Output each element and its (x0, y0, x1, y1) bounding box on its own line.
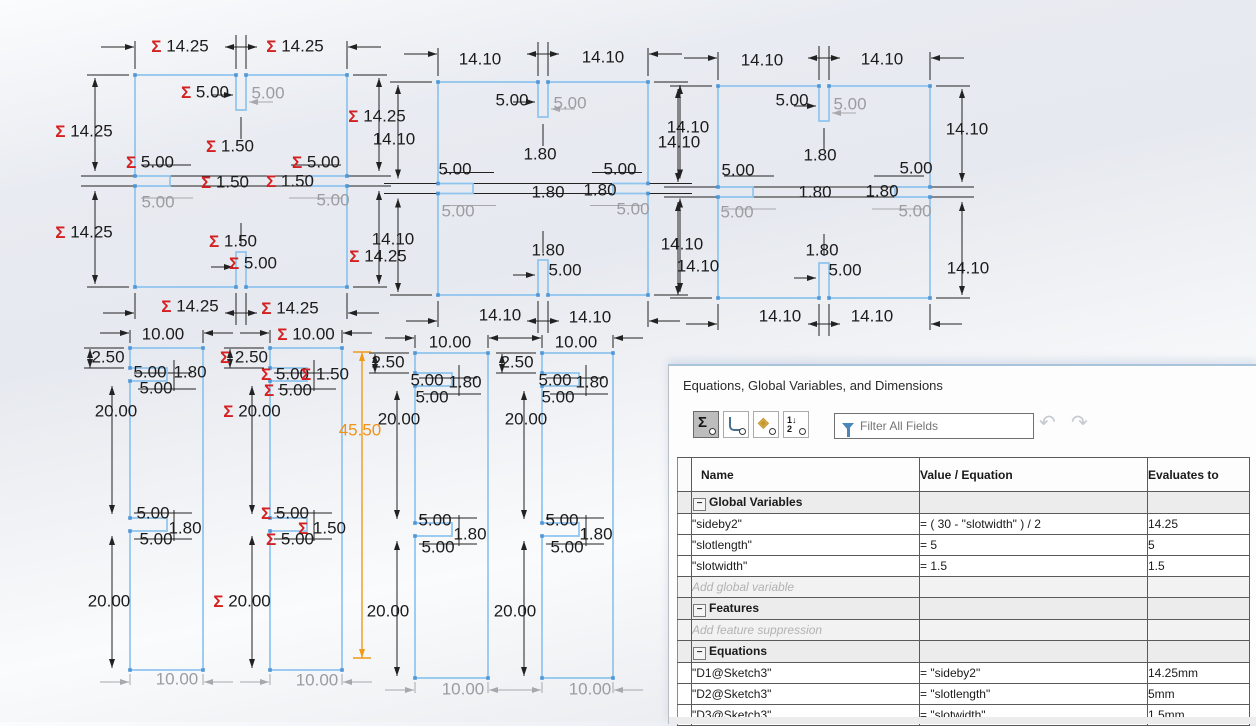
table-row-item[interactable]: "D1@Sketch3"= "sideby2"14.25mm (678, 663, 1250, 684)
table-row-group[interactable]: −Global Variables (678, 492, 1250, 514)
dimension-label[interactable]: 45.50 (339, 421, 382, 440)
cell-value[interactable] (920, 620, 1148, 641)
sketch-vertex[interactable] (128, 516, 132, 520)
sketch-vertex[interactable] (646, 192, 650, 196)
dimension-label[interactable]: 14.10 (582, 48, 625, 67)
cell-name[interactable]: −Global Variables (692, 492, 920, 514)
dimension-label[interactable]: 5.00 (251, 84, 284, 103)
dimension-label[interactable]: 1.80 (803, 146, 836, 165)
dimension-label[interactable]: 10.00 (555, 333, 598, 352)
dimension-label[interactable]: Σ 10.00 (277, 325, 334, 344)
sketch-vertex[interactable] (128, 529, 132, 533)
dimension-label[interactable]: Σ 5.00 (264, 381, 312, 400)
cell-value[interactable] (920, 492, 1148, 514)
equation-view-button[interactable]: Σ (693, 411, 719, 438)
dimension-label[interactable]: 10.00 (569, 680, 612, 699)
dimension-label[interactable]: 1.80 (453, 525, 486, 544)
sketch-vertex[interactable] (244, 73, 248, 77)
sketch-vertex[interactable] (716, 84, 720, 88)
sketch-vertex[interactable] (486, 676, 490, 680)
dimension-label[interactable]: 2.50 (500, 353, 533, 372)
cell-value[interactable]: = "sideby2" (920, 663, 1148, 684)
dimension-label[interactable]: 20.00 (378, 410, 421, 429)
sketch-vertex[interactable] (716, 296, 720, 300)
sketch-vertex[interactable] (536, 293, 540, 297)
dimension-label[interactable]: 5.00 (553, 94, 586, 113)
table-row-placeholder[interactable]: Add global variable (678, 577, 1250, 598)
dimension-label[interactable]: 5.00 (775, 91, 808, 110)
table-row-group[interactable]: −Features (678, 598, 1250, 620)
dimension-label[interactable]: 1.80 (173, 363, 206, 382)
sketch-vertex[interactable] (646, 182, 650, 186)
sketch-vertex[interactable] (133, 174, 137, 178)
dimension-view-icon (729, 417, 742, 431)
dimension-view-button[interactable] (723, 411, 749, 438)
row-gutter[interactable] (678, 663, 692, 684)
sketch-vertex[interactable] (817, 296, 821, 300)
dimension-label[interactable]: 2.50 (91, 348, 124, 367)
cell-value[interactable]: = 1.5 (920, 556, 1148, 577)
cell-evaluates[interactable] (1148, 620, 1250, 641)
sketch-vertex[interactable] (546, 293, 550, 297)
sketch-vertex[interactable] (413, 351, 417, 355)
dimension-label[interactable]: 14.10 (661, 235, 704, 254)
cell-name[interactable]: "D1@Sketch3" (692, 663, 920, 684)
collapse-toggle[interactable]: − (693, 498, 706, 511)
dimension-label[interactable]: Σ 14.25 (55, 223, 112, 242)
dimension-label[interactable]: 5.00 (721, 161, 754, 180)
dimension-label[interactable]: 1.80 (531, 183, 564, 202)
dialog-toolbar: Σ ◈ 1↓ 2 ↶ ↷ (669, 409, 1256, 449)
cell-value[interactable] (920, 598, 1148, 620)
filter-icon (842, 423, 854, 430)
dimension-label[interactable]: 2.50 (371, 353, 404, 372)
row-gutter[interactable] (678, 598, 692, 620)
dimension-label[interactable]: 1.80 (575, 373, 608, 392)
cell-name[interactable]: Add feature suppression (692, 620, 920, 641)
dialog-title: Equations, Global Variables, and Dimensi… (683, 378, 943, 393)
sketch-vertex[interactable] (345, 285, 349, 289)
dimension-label[interactable]: Σ 1.50 (206, 137, 254, 156)
cell-evaluates[interactable]: 1.5 (1148, 556, 1250, 577)
dialog-footer (669, 717, 1256, 724)
sketch-vertex[interactable] (268, 346, 272, 350)
sketch-vertex[interactable] (201, 346, 205, 350)
dimension-label[interactable]: 1.80 (583, 181, 616, 200)
solidworks-viewport: { "sketch": { "colors": {"sketch_blue":"… (0, 0, 1256, 722)
cell-name[interactable]: "sideby2" (692, 514, 920, 535)
row-gutter[interactable] (678, 684, 692, 705)
sketch-vertex[interactable] (611, 351, 615, 355)
collapse-toggle[interactable]: − (693, 647, 706, 660)
dimension-label[interactable]: Σ 5.00 (229, 254, 277, 273)
dimension-label[interactable]: 14.10 (947, 259, 990, 278)
sigma-icon: Σ (698, 414, 707, 431)
dimension-label[interactable]: 10.00 (156, 670, 199, 689)
dimension-label[interactable]: Σ 5.00 (292, 153, 340, 172)
cell-evaluates[interactable] (1148, 577, 1250, 598)
filter-input[interactable] (858, 418, 1033, 434)
dimension-label[interactable]: Σ 1.50 (201, 173, 249, 192)
cell-evaluates[interactable]: 14.25mm (1148, 663, 1250, 684)
dimension-label[interactable]: 20.00 (95, 402, 138, 421)
sketch-vertex[interactable] (413, 676, 417, 680)
dimension-label[interactable]: Σ 14.25 (349, 247, 406, 266)
sketch-vertex[interactable] (486, 351, 490, 355)
sketch-vertex[interactable] (536, 80, 540, 84)
table-row-item[interactable]: "D2@Sketch3"= "slotlength"5mm (678, 684, 1250, 705)
dimension-label[interactable]: 5.00 (616, 200, 649, 219)
dimension-label[interactable]: 5.00 (438, 160, 471, 179)
sketch-vertex[interactable] (234, 73, 238, 77)
sketch-vertex[interactable] (928, 185, 932, 189)
dimension-label[interactable]: 14.10 (741, 51, 784, 70)
dimension-label[interactable]: Σ 20.00 (223, 402, 280, 421)
cell-name[interactable]: "slotwidth" (692, 556, 920, 577)
dimension-label[interactable]: 5.00 (441, 202, 474, 221)
row-gutter[interactable] (678, 535, 692, 556)
dimension-label[interactable]: 14.10 (851, 307, 894, 326)
table-row-placeholder[interactable]: Add feature suppression (678, 620, 1250, 641)
dimension-label[interactable]: 14.10 (479, 306, 522, 325)
sketch-vertex[interactable] (716, 185, 720, 189)
dimension-label[interactable]: 20.00 (494, 602, 537, 621)
column-header-evaluates: Evaluates to (1148, 458, 1250, 492)
dimension-label[interactable]: 20.00 (367, 602, 410, 621)
dimension-label[interactable]: 14.10 (373, 130, 416, 149)
dimension-label[interactable]: 10.00 (442, 680, 485, 699)
sketch-vertex[interactable] (540, 534, 544, 538)
ordered-view-icon: ◈ (758, 414, 769, 431)
sketch-vertex[interactable] (646, 293, 650, 297)
dimension-label[interactable]: Σ 5.00 (181, 83, 229, 102)
sorted-view-icon: 1↓ 2 (787, 416, 797, 434)
table-row-item[interactable]: "slotlength"= 55 (678, 535, 1250, 556)
sketch-vertex[interactable] (128, 346, 132, 350)
dimension-label[interactable]: 5.00 (899, 159, 932, 178)
dimension-label[interactable]: 5.00 (550, 538, 583, 557)
sketch-vertex[interactable] (827, 84, 831, 88)
dimension-label[interactable]: 5.00 (603, 160, 636, 179)
dimension-label[interactable]: Σ 14.25 (55, 122, 112, 141)
row-gutter[interactable] (678, 620, 692, 641)
dimension-label[interactable]: 5.00 (421, 538, 454, 557)
dimension-label[interactable]: 14.10 (861, 50, 904, 69)
row-gutter[interactable] (678, 577, 692, 598)
dimension-label[interactable]: 10.00 (296, 671, 339, 690)
table-row-group[interactable]: −Equations (678, 641, 1250, 663)
sketch-vertex[interactable] (540, 521, 544, 525)
dimension-label[interactable]: 1.80 (531, 241, 564, 260)
dimension-label[interactable]: 1.80 (798, 183, 831, 202)
dimension-label[interactable]: Σ 5.00 (126, 153, 174, 172)
dimension-label[interactable]: 5.00 (136, 504, 169, 523)
table-header-row: Name Value / Equation Evaluates to (678, 458, 1250, 492)
cell-evaluates[interactable]: 5mm (1148, 684, 1250, 705)
row-gutter[interactable] (678, 492, 692, 514)
dimension-label[interactable]: 20.00 (505, 410, 548, 429)
dimension-label[interactable]: 5.00 (548, 261, 581, 280)
cell-value[interactable] (920, 641, 1148, 663)
dimension-label[interactable]: 1.80 (523, 145, 556, 164)
sketch-vertex[interactable] (817, 84, 821, 88)
cell-name[interactable]: −Equations (692, 641, 920, 663)
sketch-vertex[interactable] (133, 73, 137, 77)
sketch-vertex[interactable] (345, 184, 349, 188)
dimension-label[interactable]: 5.00 (541, 388, 574, 407)
cell-value[interactable]: = "slotlength" (920, 684, 1148, 705)
cell-evaluates[interactable]: 14.25 (1148, 514, 1250, 535)
cell-evaluates[interactable] (1148, 492, 1250, 514)
dimension-label[interactable]: 1.80 (448, 373, 481, 392)
dimension-label[interactable]: 1.80 (865, 182, 898, 201)
undo-button[interactable]: ↶ (1039, 410, 1056, 435)
ordered-view-button[interactable]: ◈ (753, 411, 779, 438)
sketch-vertex[interactable] (436, 192, 440, 196)
sketch-vertex[interactable] (928, 84, 932, 88)
dimension-label[interactable]: 10.00 (429, 333, 472, 352)
cell-name[interactable]: "D2@Sketch3" (692, 684, 920, 705)
sketch-vertex[interactable] (540, 351, 544, 355)
sketch-vertex[interactable] (244, 285, 248, 289)
dimension-label[interactable]: Σ 14.25 (151, 37, 208, 56)
dimension-label[interactable]: Σ 1.50 (209, 232, 257, 251)
sketch-vertex[interactable] (133, 285, 137, 289)
dimension-label[interactable]: Σ 14.25 (161, 297, 218, 316)
sketch-vertex[interactable] (827, 296, 831, 300)
row-gutter[interactable] (678, 641, 692, 663)
cell-name[interactable]: "slotlength" (692, 535, 920, 556)
column-header-name: Name (692, 458, 920, 492)
sketch-vertex[interactable] (611, 676, 615, 680)
dimension-label[interactable]: 14.10 (569, 308, 612, 327)
dimension-label[interactable]: Σ 20.00 (213, 592, 270, 611)
sketch-vertex[interactable] (340, 346, 344, 350)
dimension-label[interactable]: Σ 5.00 (266, 530, 314, 549)
table-row-item[interactable]: "slotwidth"= 1.51.5 (678, 556, 1250, 577)
dimension-label[interactable]: 5.00 (720, 203, 753, 222)
dimension-label[interactable]: 1.80 (805, 241, 838, 260)
row-gutter[interactable] (678, 556, 692, 577)
dimension-label[interactable]: 14.10 (677, 257, 720, 276)
dimension-label[interactable]: Σ 14.25 (266, 37, 323, 56)
sketch-vertex[interactable] (128, 668, 132, 672)
sketch-vertex[interactable] (268, 668, 272, 672)
cell-name[interactable]: −Features (692, 598, 920, 620)
sketch-vertex[interactable] (340, 668, 344, 672)
table-row-item[interactable]: "sideby2"= ( 30 - "slotwidth" ) / 214.25 (678, 514, 1250, 535)
dimension-label[interactable]: 10.00 (142, 325, 185, 344)
sketch-vertex[interactable] (540, 676, 544, 680)
dimension-label[interactable]: Σ 14.25 (348, 107, 405, 126)
sketch-vertex[interactable] (345, 73, 349, 77)
dimension-label[interactable]: 14.10 (459, 50, 502, 69)
sketch-vertex[interactable] (928, 195, 932, 199)
collapse-toggle[interactable]: − (693, 604, 706, 617)
cell-value[interactable] (920, 577, 1148, 598)
filter-field (834, 413, 1034, 439)
sketch-vertex[interactable] (436, 293, 440, 297)
sorted-view-button[interactable]: 1↓ 2 (783, 411, 809, 438)
dimension-label[interactable]: 5.00 (415, 388, 448, 407)
dimension-label[interactable]: 5.00 (828, 261, 861, 280)
dimension-label[interactable]: 5.00 (495, 91, 528, 110)
column-header-value: Value / Equation (920, 458, 1148, 492)
sketch-vertex[interactable] (128, 366, 132, 370)
sketch-vertex[interactable] (413, 534, 417, 538)
dimension-label[interactable]: 14.10 (946, 120, 989, 139)
sketch-vertex[interactable] (928, 296, 932, 300)
equations-dialog: Equations, Global Variables, and Dimensi… (668, 364, 1256, 724)
sketch-vertex[interactable] (413, 521, 417, 525)
dimension-label[interactable]: 14.10 (759, 307, 802, 326)
dimension-label[interactable]: 5.00 (139, 530, 172, 549)
sketch-vertex[interactable] (436, 80, 440, 84)
cell-value[interactable]: = ( 30 - "slotwidth" ) / 2 (920, 514, 1148, 535)
row-gutter[interactable] (678, 514, 692, 535)
redo-button[interactable]: ↷ (1071, 410, 1088, 435)
sketch-vertex[interactable] (133, 184, 137, 188)
sketch-vertex[interactable] (436, 182, 440, 186)
dimension-label[interactable]: 1.80 (168, 519, 201, 538)
sketch-vertex[interactable] (345, 174, 349, 178)
sketch-vertex[interactable] (716, 195, 720, 199)
dimension-label[interactable]: 1.80 (579, 525, 612, 544)
dimension-label[interactable]: 14.10 (658, 133, 701, 152)
dimension-label[interactable]: 5.00 (141, 193, 174, 212)
sketch-vertex[interactable] (234, 285, 238, 289)
dimension-label[interactable]: 5.00 (139, 379, 172, 398)
cell-evaluates[interactable]: 5 (1148, 535, 1250, 556)
cell-value[interactable]: = 5 (920, 535, 1148, 556)
dimension-label[interactable]: Σ 1.50 (266, 172, 314, 191)
cell-evaluates[interactable] (1148, 641, 1250, 663)
dimension-label[interactable]: 5.00 (833, 95, 866, 114)
dimension-label[interactable]: 5.00 (316, 191, 349, 210)
dimension-label[interactable]: 20.00 (88, 592, 131, 611)
equations-table: Name Value / Equation Evaluates to −Glob… (677, 457, 1250, 726)
dimension-label[interactable]: Σ 14.25 (261, 299, 318, 318)
sketch-vertex[interactable] (546, 80, 550, 84)
dimension-label[interactable]: 5.00 (545, 511, 578, 530)
sketch-vertex[interactable] (201, 668, 205, 672)
cell-evaluates[interactable] (1148, 598, 1250, 620)
dimension-label[interactable]: 5.00 (418, 511, 451, 530)
dimension-label[interactable]: 5.00 (898, 202, 931, 221)
cell-name[interactable]: Add global variable (692, 577, 920, 598)
sketch-vertex[interactable] (128, 379, 132, 383)
sketch-vertex[interactable] (646, 80, 650, 84)
